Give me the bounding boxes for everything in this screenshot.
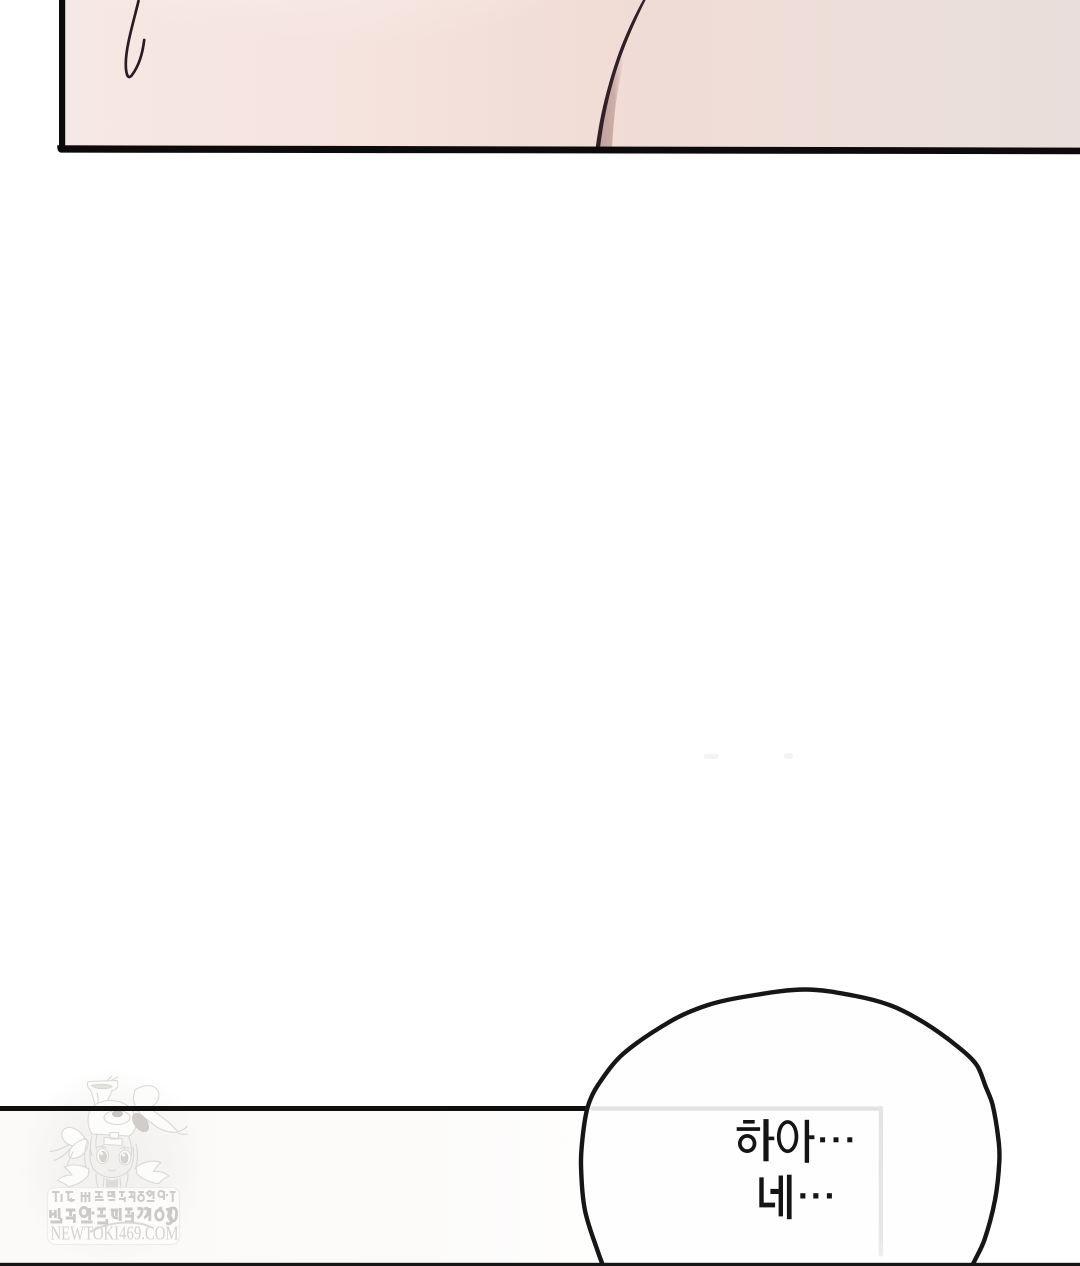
svg-text:NEWTOKI469.COM: NEWTOKI469.COM xyxy=(51,1224,179,1245)
